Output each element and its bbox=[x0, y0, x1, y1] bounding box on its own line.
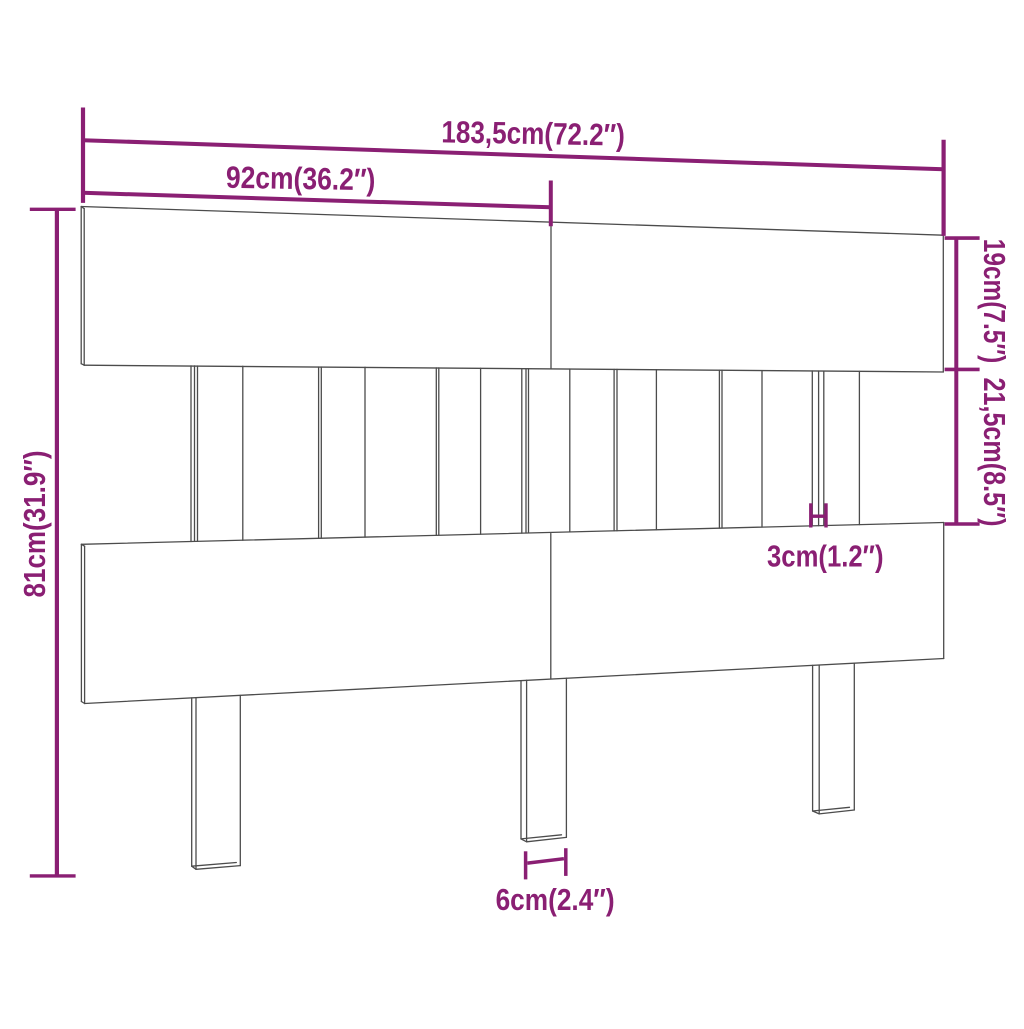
svg-text:19cm(7.5″): 19cm(7.5″) bbox=[977, 239, 1012, 364]
svg-text:3cm(1.2″): 3cm(1.2″) bbox=[767, 539, 884, 574]
svg-text:6cm(2.4″): 6cm(2.4″) bbox=[496, 882, 615, 917]
svg-text:183,5cm(72.2″): 183,5cm(72.2″) bbox=[441, 114, 625, 152]
svg-text:21,5cm(8.5″): 21,5cm(8.5″) bbox=[977, 378, 1012, 527]
svg-text:81cm(31.9″): 81cm(31.9″) bbox=[17, 451, 52, 598]
svg-text:92cm(36.2″): 92cm(36.2″) bbox=[226, 160, 376, 198]
